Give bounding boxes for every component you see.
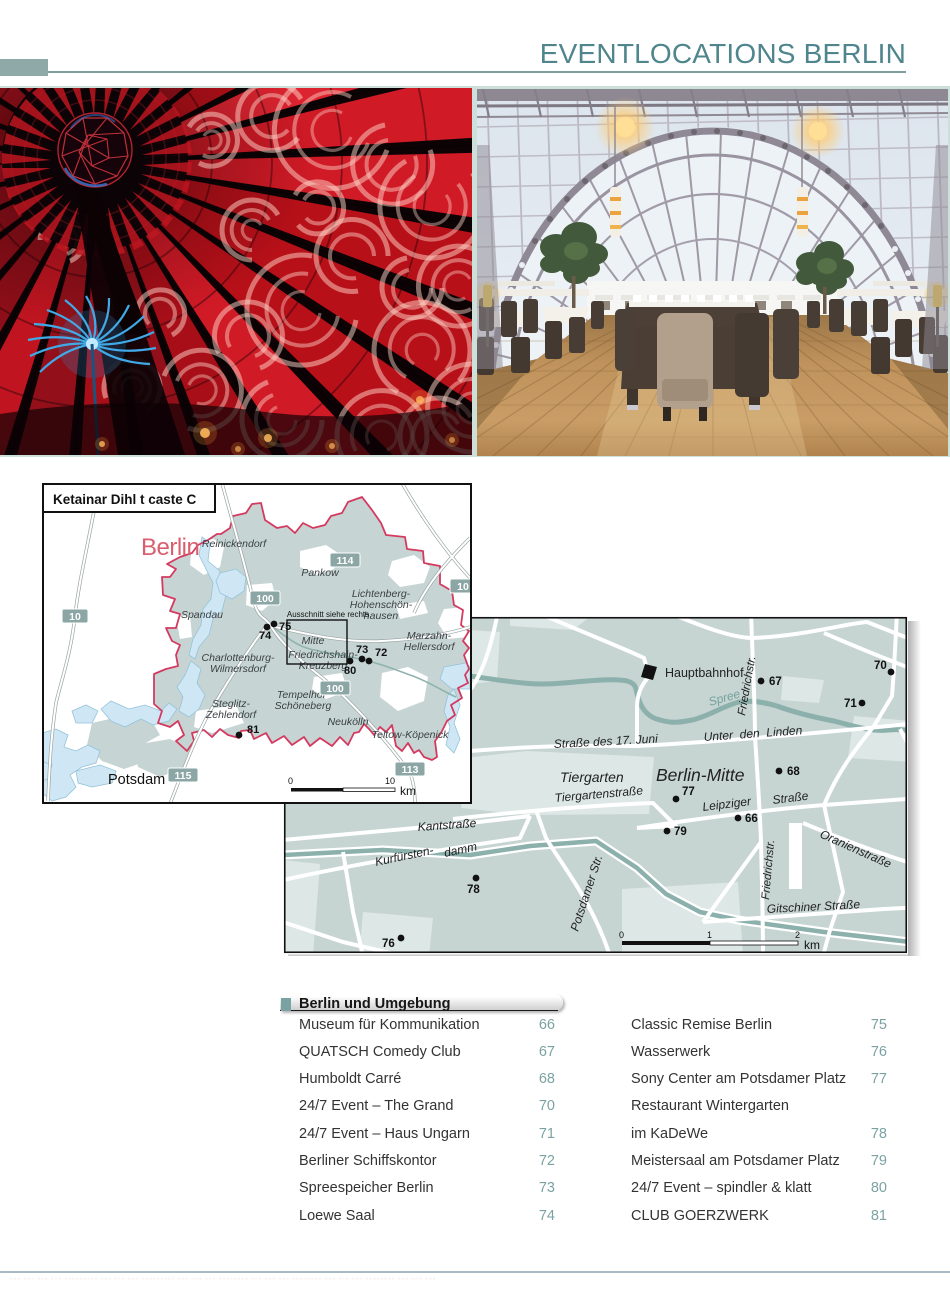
svg-text:Hellersdorf: Hellersdorf bbox=[404, 641, 456, 653]
svg-text:0: 0 bbox=[619, 930, 624, 940]
svg-text:78: 78 bbox=[467, 884, 480, 896]
svg-text:Teltow-Köpenick: Teltow-Köpenick bbox=[372, 729, 449, 741]
svg-text:76: 76 bbox=[382, 938, 395, 950]
svg-text:75: 75 bbox=[279, 621, 291, 633]
svg-text:km: km bbox=[804, 938, 820, 952]
svg-text:77: 77 bbox=[682, 786, 695, 798]
svg-text:Pankow: Pankow bbox=[301, 567, 340, 579]
svg-text:Kreuzberg: Kreuzberg bbox=[299, 660, 348, 672]
svg-text:100: 100 bbox=[256, 593, 274, 605]
svg-text:0: 0 bbox=[288, 776, 293, 786]
svg-text:Potsdam: Potsdam bbox=[108, 772, 165, 788]
svg-text:1: 1 bbox=[707, 930, 712, 940]
svg-text:68: 68 bbox=[787, 766, 800, 778]
svg-text:73: 73 bbox=[356, 644, 368, 656]
svg-text:Mitte: Mitte bbox=[302, 635, 325, 647]
svg-text:Schöneberg: Schöneberg bbox=[275, 700, 332, 712]
svg-text:km: km bbox=[400, 784, 416, 798]
svg-text:72: 72 bbox=[375, 647, 387, 659]
svg-text:Zehlendorf: Zehlendorf bbox=[205, 709, 257, 721]
svg-text:Spandau: Spandau bbox=[181, 609, 223, 621]
svg-text:115: 115 bbox=[175, 770, 192, 782]
svg-text:Ketainar Dihl t caste C: Ketainar Dihl t caste C bbox=[53, 492, 197, 507]
svg-text:Berlin: Berlin bbox=[141, 534, 199, 561]
svg-text:74: 74 bbox=[259, 630, 272, 642]
svg-text:71: 71 bbox=[844, 698, 857, 710]
svg-text:Reinickendorf: Reinickendorf bbox=[202, 538, 267, 550]
svg-text:Hauptbahnhof: Hauptbahnhof bbox=[665, 666, 744, 680]
svg-text:10: 10 bbox=[69, 611, 81, 623]
svg-text:Wilmersdorf: Wilmersdorf bbox=[210, 663, 267, 675]
svg-text:70: 70 bbox=[874, 660, 887, 672]
svg-text:81: 81 bbox=[247, 724, 259, 736]
svg-text:113: 113 bbox=[402, 764, 419, 776]
svg-text:80: 80 bbox=[344, 665, 356, 677]
svg-text:67: 67 bbox=[769, 676, 782, 688]
svg-text:66: 66 bbox=[745, 813, 758, 825]
svg-text:114: 114 bbox=[337, 555, 354, 567]
svg-text:10: 10 bbox=[457, 581, 469, 593]
svg-text:79: 79 bbox=[674, 826, 687, 838]
svg-text:100: 100 bbox=[326, 683, 344, 695]
svg-text:10: 10 bbox=[385, 776, 395, 786]
svg-text:Tiergarten: Tiergarten bbox=[560, 769, 624, 785]
svg-text:Berlin-Mitte: Berlin-Mitte bbox=[656, 765, 745, 785]
svg-text:Neukölln: Neukölln bbox=[328, 716, 369, 728]
svg-text:2: 2 bbox=[795, 930, 800, 940]
svg-text:Ausschnitt siehe rechts: Ausschnitt siehe rechts bbox=[287, 610, 369, 619]
